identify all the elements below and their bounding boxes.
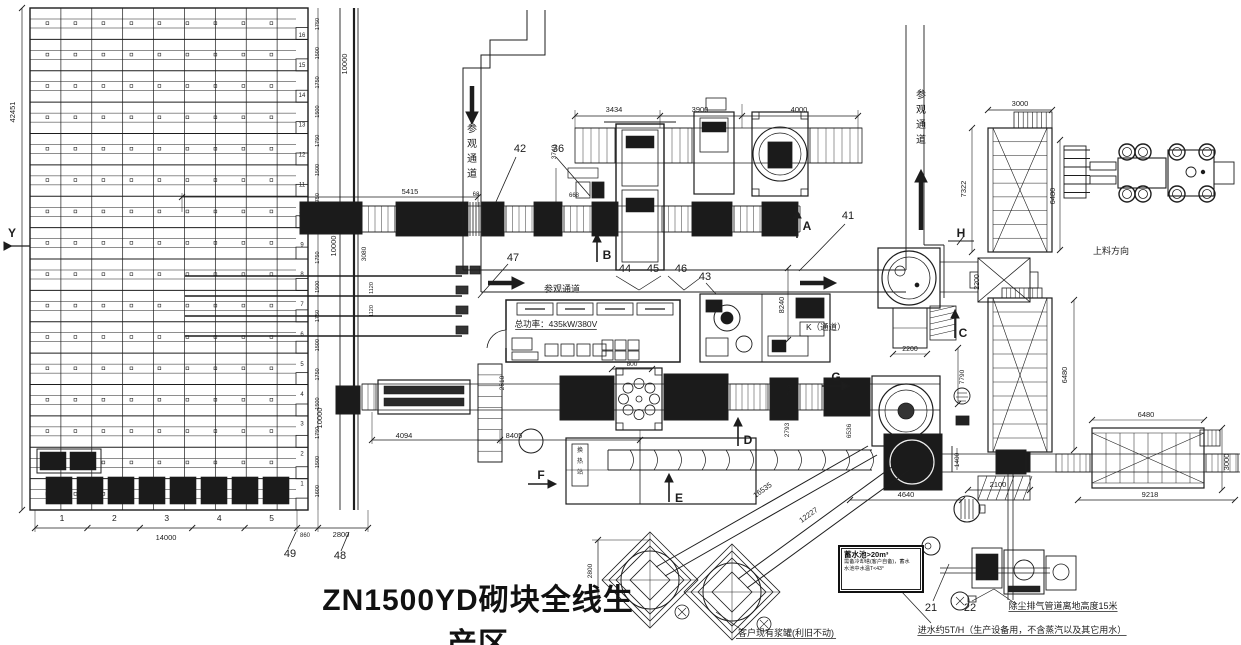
control-room	[487, 300, 680, 372]
dimension-label: 6480	[1060, 367, 1069, 384]
dimension-label: 3900	[692, 105, 709, 114]
rack-bay-dimension: 1500	[315, 456, 321, 468]
dimension-label: 2800	[333, 530, 350, 539]
corridor-label: 参	[916, 88, 926, 101]
visitor-corridor-right: 参观通道	[785, 25, 944, 343]
section-letter: G	[831, 370, 840, 384]
dimension-label: 2200	[902, 346, 918, 353]
dimension-label: 2793	[784, 422, 791, 437]
rack-row-number: 5	[300, 362, 304, 368]
rack-bay-dimension: 1750	[315, 368, 321, 380]
dimension-label: 3434	[606, 105, 623, 114]
corridor-label: 观	[916, 104, 926, 116]
item-number: 43	[699, 271, 711, 283]
dimension-label: 6536	[846, 423, 853, 438]
dimension-label: 2100	[990, 480, 1007, 489]
dimension-label: 6480	[1138, 410, 1155, 419]
section-letter: H	[957, 226, 966, 240]
dimension-label: 4640	[898, 490, 915, 499]
dimension-label: 860	[300, 533, 311, 539]
dimension-label: 16535	[751, 480, 773, 500]
passage-k-label: K（通道）	[806, 322, 846, 332]
rack-bay-dimension: 1500	[315, 47, 321, 59]
loading-direction-label: 上料方向	[1093, 245, 1129, 256]
rack-bay-dimension: 1750	[315, 251, 321, 263]
item-number: 44	[619, 263, 631, 275]
dimension-label: 4094	[396, 431, 413, 440]
item-number: 36	[552, 143, 564, 155]
rack-row-number: 6	[300, 332, 304, 338]
dimension-label: 7322	[959, 181, 968, 198]
rack-bay-dimension: 1500	[315, 339, 321, 351]
item-number: 42	[514, 143, 526, 155]
item-number: 22	[964, 602, 976, 614]
heat-station-label: 站	[577, 468, 583, 476]
rack-row-number: 4	[300, 392, 304, 398]
rack-row-number: 15	[299, 63, 306, 69]
rack-bay-dimension: 1500	[315, 164, 321, 176]
dimension-label: 2200	[974, 274, 981, 290]
dimension-label: 9218	[1142, 490, 1159, 499]
rack-row-number: 11	[299, 183, 306, 189]
section-letter: F	[537, 468, 544, 482]
dimension-label: 3080	[361, 246, 368, 261]
item-number: 21	[925, 602, 937, 614]
rack-column-number: 5	[269, 513, 274, 523]
annotation-text: 总功率：435kW/380V	[515, 319, 598, 329]
section-letter: B	[603, 248, 612, 262]
rack-row-number: 3	[300, 422, 304, 428]
section-letter: D	[744, 433, 753, 447]
rack-bay-dimension: 1750	[315, 18, 321, 30]
rack-bay-dimension: 1500	[315, 105, 321, 117]
item-number: 45	[647, 263, 659, 275]
dimension-label: 3000	[1222, 454, 1231, 471]
dimension-label: 1120	[369, 282, 375, 294]
dimension-label: 6480	[1048, 188, 1057, 205]
dimension-label: 68	[473, 192, 480, 198]
item-number: 48	[334, 550, 346, 562]
dimension-label: 8240	[777, 297, 786, 314]
rack-row-number: 8	[300, 272, 304, 278]
visitor-corridor-left: 参观通道	[463, 10, 545, 292]
drawing-title: ZN1500YD砌块全线生产区	[308, 575, 648, 645]
heat-exchange-area: 换热站	[528, 434, 942, 504]
dimension-label: 10000	[315, 408, 324, 429]
rack-row-number: 1	[300, 482, 304, 488]
dimension-label: 7790	[959, 369, 966, 384]
item-number: 41	[842, 210, 854, 222]
reservoir-note-line1: 蓄水池>20m³	[844, 550, 918, 559]
section-letter: A	[803, 219, 812, 233]
rack-column-number: 4	[217, 513, 222, 523]
cutting-line-upper	[495, 98, 862, 270]
rack-row-number: 16	[299, 33, 306, 39]
corridor-label: 通	[467, 153, 477, 165]
dimension-label: 668	[569, 193, 580, 199]
rack-bay-dimension: 1750	[315, 76, 321, 88]
rack-row-number: 12	[299, 153, 306, 159]
rack-row-number: 14	[299, 93, 306, 99]
dimension-label: 1400	[954, 452, 961, 467]
corridor-label: 通	[916, 119, 926, 131]
annotation-text: 客户现有浆罐(利旧不动)	[738, 627, 834, 638]
item-number: 49	[284, 548, 296, 560]
item-number: 46	[675, 263, 687, 275]
rack-column-number: 1	[60, 513, 65, 523]
reservoir-note-line3: 水池中水温T<43°	[844, 566, 918, 573]
annotation-text: 进水约5T/H（生产设备用，不含蒸汽以及其它用水）	[918, 624, 1127, 635]
dimension-label: 800	[627, 361, 638, 368]
plant-layout-drawing: 1750150017501500175015001750150017501500…	[0, 0, 1241, 645]
dimension-label: 4000	[791, 105, 808, 114]
main-line-upper	[179, 168, 800, 262]
section-letter: Y	[8, 226, 16, 240]
dimension-label: 760	[787, 384, 794, 395]
reservoir-note-box: 蓄水池>20m³ 需备冷却塔(客户自备)，蓄水 水池中水温T<43°	[838, 545, 924, 593]
rack-column-number: 2	[112, 513, 117, 523]
heat-station-label: 换	[577, 446, 583, 454]
item-number: 47	[507, 252, 519, 264]
rack-row-number: 13	[299, 123, 306, 129]
cad-drawing-sheet: 1750150017501500175015001750150017501500…	[0, 0, 1241, 645]
rack-bay-dimension: 1600	[315, 485, 321, 497]
right-racks: 上料方向	[969, 107, 1238, 503]
corridor-label: 道	[916, 133, 926, 146]
dimension-label: 10000	[340, 54, 349, 75]
heat-station-label: 热	[577, 457, 583, 465]
rack-bay-dimension: 1750	[315, 135, 321, 147]
curing-rack: 1750150017501500175015001750150017501500…	[4, 5, 372, 551]
dimension-label: 5415	[402, 187, 419, 196]
rack-bay-dimension: 1500	[315, 281, 321, 293]
corridor-label: 参	[467, 122, 477, 135]
machine-room: K（通道）	[700, 294, 846, 362]
dimension-label: 10000	[329, 236, 338, 257]
dimension-label: 8405	[506, 431, 523, 440]
dimension-label: 1120	[369, 305, 375, 317]
dimension-label: 3000	[1012, 99, 1029, 108]
dimension-label: 14000	[156, 533, 177, 542]
dimension-label: 42451	[8, 102, 17, 123]
rack-column-number: 3	[164, 513, 169, 523]
annotation-text: 除尘排气管道离地高度15米	[1008, 600, 1117, 611]
corridor-label: 道	[467, 167, 477, 180]
corridor-label: 观	[467, 138, 477, 150]
wheel-loader	[1064, 144, 1234, 202]
reservoir-note-line2: 需备冷却塔(客户自备)，蓄水	[844, 559, 918, 566]
rack-row-number: 2	[300, 452, 304, 458]
section-letter: C	[959, 326, 968, 340]
rack-row-number: 7	[300, 302, 304, 308]
section-letter: E	[675, 491, 683, 505]
corridor-label: 参观通道	[544, 283, 580, 294]
dimension-label: 2610	[499, 375, 506, 390]
